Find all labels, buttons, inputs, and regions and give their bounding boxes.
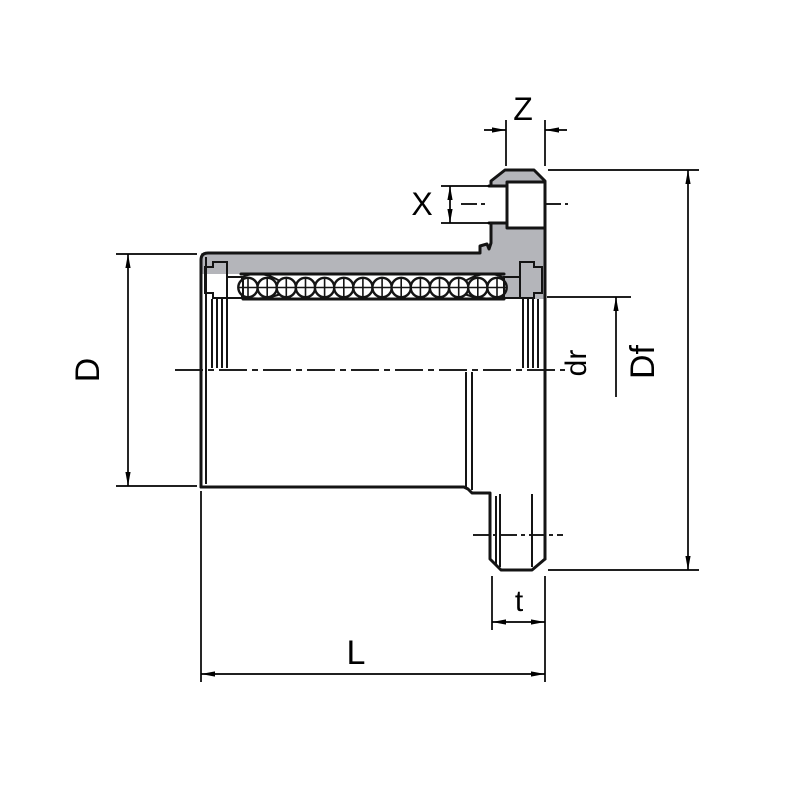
- dim-label-outer-diameter: D: [69, 358, 107, 383]
- dim-label-hole-diameter: X: [411, 186, 432, 222]
- ball-row: [238, 278, 506, 297]
- dimension-hole-diameter: X: [411, 186, 490, 223]
- dim-label-shaft-diameter: dr: [560, 350, 593, 377]
- dimension-counterbore-depth: Z: [484, 91, 567, 166]
- through-hole-void: [489, 187, 507, 223]
- dim-label-overall-length: L: [347, 634, 366, 672]
- body-outline-bottom: [201, 487, 545, 570]
- bearing-cross-section-drawing: D Z X dr: [0, 0, 800, 800]
- dim-label-counterbore-depth: Z: [513, 91, 533, 127]
- housing-band-fill: [201, 253, 545, 274]
- dimensions: D Z X dr: [69, 91, 699, 682]
- dimension-flange-thickness: t: [492, 576, 545, 682]
- dim-label-flange-diameter: Df: [624, 344, 662, 379]
- dimension-shaft-diameter: dr: [547, 297, 631, 397]
- dim-label-flange-thickness: t: [515, 585, 524, 618]
- dimension-overall-length: L: [201, 491, 545, 682]
- balls: [238, 278, 506, 297]
- counterbore-void: [507, 182, 545, 228]
- bore-seal-edges: [212, 299, 538, 368]
